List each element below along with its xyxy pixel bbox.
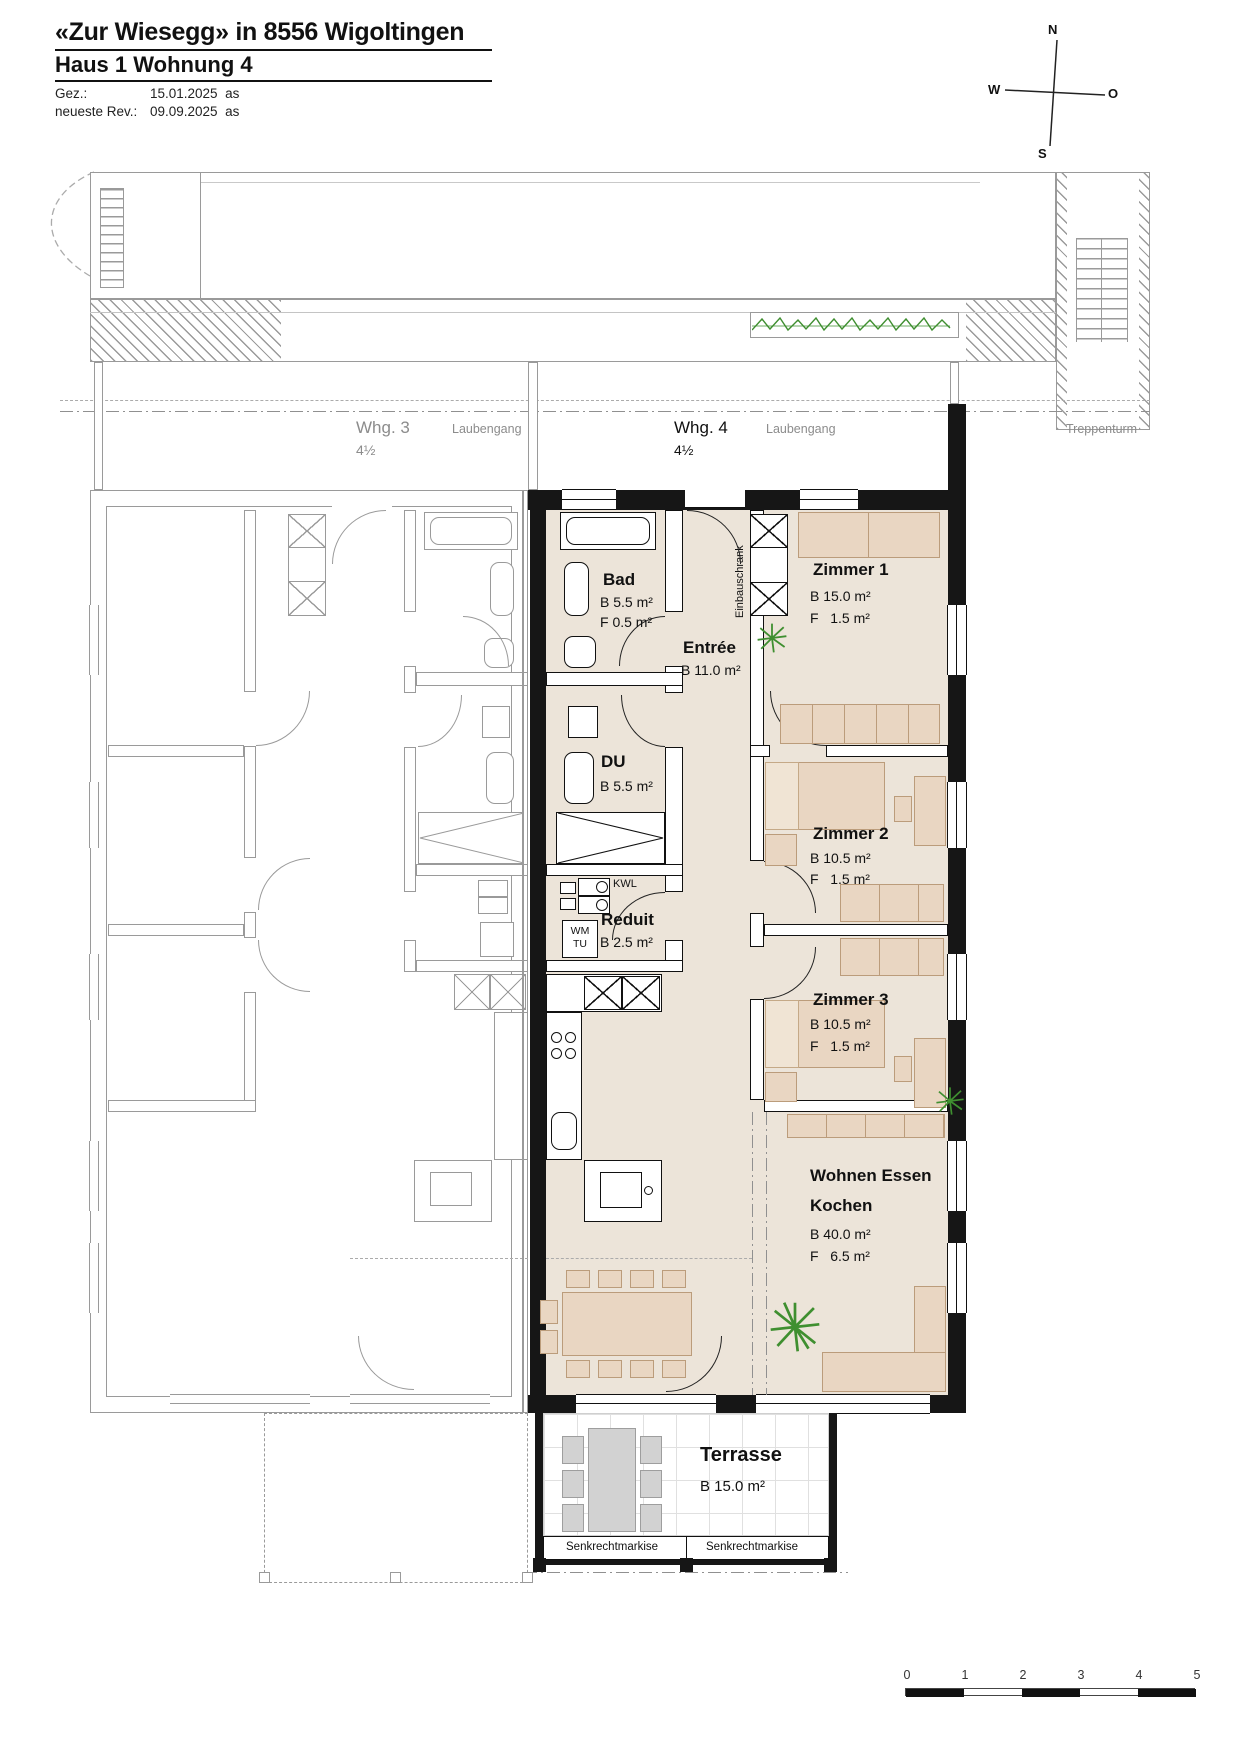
overhang-dashdot (752, 1112, 753, 1395)
dining-chair (540, 1330, 558, 1354)
plant-icon (933, 1084, 967, 1118)
terrace-post (680, 1558, 693, 1572)
compass-north-label: N (1048, 22, 1057, 37)
drawn-label: Gez.: (55, 86, 150, 101)
walkway-hatch-left (91, 300, 281, 361)
zimmer1-bed (798, 512, 940, 558)
whg3-wall (416, 672, 528, 686)
whg3-wall (404, 510, 416, 612)
planter-plants-icon (752, 314, 957, 336)
bad-area-b: B 5.5 m² (600, 594, 653, 610)
kwl-unit-dial (596, 881, 608, 893)
zimmer3-wardrobe (840, 938, 944, 976)
whg3-basin (482, 706, 510, 738)
revision-label: neueste Rev.: (55, 104, 150, 119)
wohnen-area-f: F 6.5 m² (810, 1248, 870, 1264)
whg3-washbasin (490, 562, 514, 616)
compass-west-label: W (988, 82, 1000, 97)
whg4-wall-z2-z3 (764, 924, 948, 936)
zone-whg4-size: 4½ (674, 442, 693, 458)
dining-table (562, 1292, 692, 1356)
whg3-entry-opening (332, 491, 392, 509)
scale-bar-segment (1138, 1689, 1196, 1697)
page-title: «Zur Wiesegg» in 8556 Wigoltingen (55, 18, 492, 47)
terrace-table (588, 1428, 636, 1532)
bad-area-f: F 0.5 m² (600, 614, 652, 630)
zone-whg3-label: Whg. 3 (356, 418, 410, 438)
zimmer3-chair (894, 1056, 912, 1082)
scale-bar: 0 1 2 3 4 5 (905, 1668, 1197, 1700)
stair-treads (1076, 238, 1128, 342)
zone-whg3-size: 4½ (356, 442, 375, 458)
entree-area-b: B 11.0 m² (681, 662, 741, 678)
whg3-wall (244, 992, 256, 1112)
washbasin (564, 562, 589, 616)
wohnen-label-line1: Wohnen Essen (810, 1166, 932, 1186)
zone-treppenturm-label: Treppenturm (1066, 422, 1137, 436)
scale-tick-0: 0 (901, 1668, 913, 1682)
whg3-wall (244, 746, 256, 858)
whg3-wall (404, 666, 416, 693)
whg4-terrace-door (756, 1394, 930, 1414)
zimmer2-wardrobe (840, 884, 944, 922)
awning-divider (686, 1536, 687, 1560)
connector-wall-right (948, 404, 966, 490)
zimmer3-nightstand (765, 1072, 797, 1102)
whg3-window (89, 1243, 107, 1313)
whg4-window-top-bad (562, 489, 616, 510)
whg3-cupboard (288, 581, 326, 616)
dining-chair (598, 1270, 622, 1288)
zone-laubengang-left-label: Laubengang (452, 422, 522, 436)
whg3-terrace-outline (264, 1413, 528, 1583)
whg3-window (89, 605, 107, 675)
terrace-chair (640, 1436, 662, 1464)
whg4-wall-bad-south (546, 672, 683, 686)
kwl-side-box (560, 898, 576, 910)
whg3-window (170, 1394, 310, 1413)
whg4-wall-reduit-south (546, 960, 683, 972)
dining-chair (598, 1360, 622, 1378)
whg3-shaft (490, 974, 526, 1010)
whg4-wall-z1-south (750, 745, 770, 757)
whg3-window (89, 954, 107, 1020)
whg3-terrace-post (522, 1572, 533, 1583)
whg3-washer-box (480, 922, 514, 957)
whg3-wall (108, 924, 244, 936)
upper-floor-inner-line (201, 182, 980, 183)
cooktop-burner (551, 1032, 562, 1043)
walkway-hatch-right (966, 300, 1055, 361)
whg3-terrace-post (259, 1572, 270, 1583)
plant-icon (768, 1300, 822, 1354)
whg4-window-zimmer1 (947, 605, 967, 675)
whg3-cupboard (288, 514, 326, 548)
whg3-wall (416, 864, 528, 876)
scale-bar-segment (1022, 1689, 1080, 1697)
zimmer3-area-b: B 10.5 m² (810, 1016, 871, 1032)
whg3-wall (244, 912, 256, 938)
upper-floor-outline (90, 172, 1056, 299)
zimmer1-wardrobe (780, 704, 940, 744)
dining-chair (566, 1270, 590, 1288)
wohnen-area-b: B 40.0 m² (810, 1226, 871, 1242)
bad-label: Bad (603, 570, 635, 590)
terrasse-area-b: B 15.0 m² (700, 1478, 765, 1495)
whg4-wall-corridor (750, 999, 764, 1100)
whg4-window-top-zimmer1 (800, 489, 858, 510)
terrace-tiles (543, 1413, 829, 1536)
whg3-window (89, 782, 107, 848)
party-wall (530, 490, 546, 1413)
scale-tick-2: 2 (1017, 1668, 1029, 1682)
wohnen-label-line2: Kochen (810, 1196, 872, 1216)
page-subtitle: Haus 1 Wohnung 4 (55, 52, 492, 78)
compass-south-label: S (1038, 146, 1047, 161)
whg3-shaft (454, 974, 490, 1010)
whg3-bathtub-inner (430, 517, 512, 545)
dining-chair (630, 1360, 654, 1378)
stair-center-line (1101, 238, 1102, 342)
scale-tick-3: 3 (1075, 1668, 1087, 1682)
kitchen-shaft (622, 976, 660, 1010)
drawn-date: 15.01.2025 as (150, 86, 239, 101)
zimmer1-area-b: B 15.0 m² (810, 588, 871, 604)
whg3-wall (416, 960, 528, 972)
zone-laubengang-right-label: Laubengang (766, 422, 836, 436)
dining-chair (566, 1360, 590, 1378)
cooktop-burner (565, 1048, 576, 1059)
whg4-window-zimmer3 (947, 954, 967, 1020)
du-shower (564, 752, 594, 804)
whg3-island-sink (430, 1172, 472, 1206)
island-sink (600, 1172, 642, 1208)
scale-tick-1: 1 (959, 1668, 971, 1682)
scale-bar-track (905, 1688, 1195, 1696)
upper-ladder (100, 188, 124, 288)
zimmer2-area-f: F 1.5 m² (810, 871, 870, 887)
whg3-kwl-unit (478, 897, 508, 914)
revision-date: 09.09.2025 as (150, 104, 239, 119)
sideboard (787, 1114, 945, 1138)
whg3-wall (404, 747, 416, 892)
terrace-chair (562, 1504, 584, 1532)
terrace-dashdot (524, 1572, 848, 1573)
whg4-window-wohnen-2 (947, 1243, 967, 1313)
zimmer1-label: Zimmer 1 (813, 560, 889, 580)
zimmer3-area-f: F 1.5 m² (810, 1038, 870, 1054)
zone-whg4-label: Whg. 4 (674, 418, 728, 438)
zimmer3-pillow (765, 1000, 799, 1068)
whg3-window (350, 1394, 490, 1413)
washer-label: WM (563, 925, 597, 938)
kwl-label: KWL (613, 878, 637, 890)
einbauschrank-cabinet (750, 582, 788, 616)
awning-left-label: Senkrechtmarkise (566, 1541, 658, 1553)
du-duct-diagonals (556, 812, 665, 864)
roof-edge-dashed-line (60, 400, 1150, 401)
compass-icon (985, 18, 1125, 163)
wc (564, 636, 596, 668)
zimmer2-area-b: B 10.5 m² (810, 850, 871, 866)
whg4-entry-opening (685, 489, 745, 508)
whg3-window (89, 1141, 107, 1211)
dining-chair (662, 1360, 686, 1378)
zimmer2-nightstand (765, 834, 797, 866)
plant-icon (753, 620, 791, 656)
plan-subtitle-block: Haus 1 Wohnung 4 (55, 52, 492, 82)
whg3-kwl-unit (478, 880, 508, 897)
scale-tick-5: 5 (1191, 1668, 1203, 1682)
zimmer2-chair (894, 796, 912, 822)
party-wall-grey-face (522, 490, 524, 1413)
axis-dashdot-line (60, 411, 1150, 412)
entree-label: Entrée (683, 638, 736, 658)
scale-bar-segment (906, 1689, 964, 1697)
awning-right-label: Senkrechtmarkise (706, 1541, 798, 1553)
dining-chair (540, 1300, 558, 1324)
dining-chair (630, 1270, 654, 1288)
terrace-chair (640, 1470, 662, 1498)
island-faucet (644, 1186, 653, 1195)
stair-tower-wall-left (1057, 173, 1067, 429)
zimmer3-label: Zimmer 3 (813, 990, 889, 1010)
terrace-chair (640, 1504, 662, 1532)
terrace-chair (562, 1436, 584, 1464)
terrace-chair (562, 1470, 584, 1498)
dryer-label: TU (563, 938, 597, 951)
terrace-post (824, 1558, 837, 1572)
einbauschrank-cabinet (750, 547, 788, 583)
floor-plan-page: «Zur Wiesegg» in 8556 Wigoltingen Haus 1… (0, 0, 1241, 1754)
whg3-wall (108, 745, 244, 757)
washer-dryer-box: WM TU (562, 920, 598, 958)
reduit-area-b: B 2.5 m² (600, 934, 653, 950)
whg3-wall (108, 1100, 256, 1112)
connector-wall-right-upper (950, 362, 959, 404)
du-label: DU (601, 752, 626, 772)
kitchen-sink (551, 1112, 577, 1150)
whg4-window-wohnen-1 (947, 1141, 967, 1211)
whg3-terrace-post (390, 1572, 401, 1583)
du-area-b: B 5.5 m² (600, 778, 653, 794)
terrace-wall-left (535, 1413, 543, 1562)
whg3-wall (404, 940, 416, 972)
einbauschrank-cabinet (750, 514, 788, 548)
scale-tick-4: 4 (1133, 1668, 1145, 1682)
terrace-wall-right (829, 1413, 837, 1562)
zimmer2-pillow (765, 762, 799, 830)
terrasse-label: Terrasse (700, 1444, 782, 1467)
whg4-wall (665, 510, 683, 612)
plan-title-block: «Zur Wiesegg» in 8556 Wigoltingen (55, 18, 492, 51)
cooktop-burner (551, 1048, 562, 1059)
connector-wall-left (94, 362, 103, 490)
du-basin (568, 706, 598, 738)
sofa-seat (822, 1352, 946, 1392)
whg4-window-bottom-1 (576, 1394, 716, 1414)
compass-east-label: O (1108, 86, 1118, 101)
overhang-dashed-h (546, 1258, 752, 1259)
whg4-wall-corridor (750, 913, 764, 947)
kitchen-shaft (584, 976, 622, 1010)
terrace-post (533, 1558, 546, 1572)
whg3-shower (486, 752, 514, 804)
reduit-label: Reduit (601, 910, 654, 930)
whg3-cupboard (288, 547, 326, 582)
cooktop-burner (565, 1032, 576, 1043)
whg4-window-zimmer2 (947, 782, 967, 848)
whg3-duct-diagonals (418, 812, 524, 864)
whg4-wall-du-south (546, 864, 683, 876)
zimmer2-label: Zimmer 2 (813, 824, 889, 844)
whg4-wall-z1-south (826, 745, 948, 757)
whg3-wall (244, 510, 256, 692)
connector-wall-center (528, 362, 538, 490)
whg3-overhang-dashed (350, 1258, 528, 1259)
zimmer2-desk (914, 776, 946, 846)
dining-chair (662, 1270, 686, 1288)
zimmer1-area-f: F 1.5 m² (810, 610, 870, 626)
bathtub-inner (566, 517, 650, 545)
kwl-side-box (560, 882, 576, 894)
stair-tower-wall-right (1139, 173, 1149, 429)
